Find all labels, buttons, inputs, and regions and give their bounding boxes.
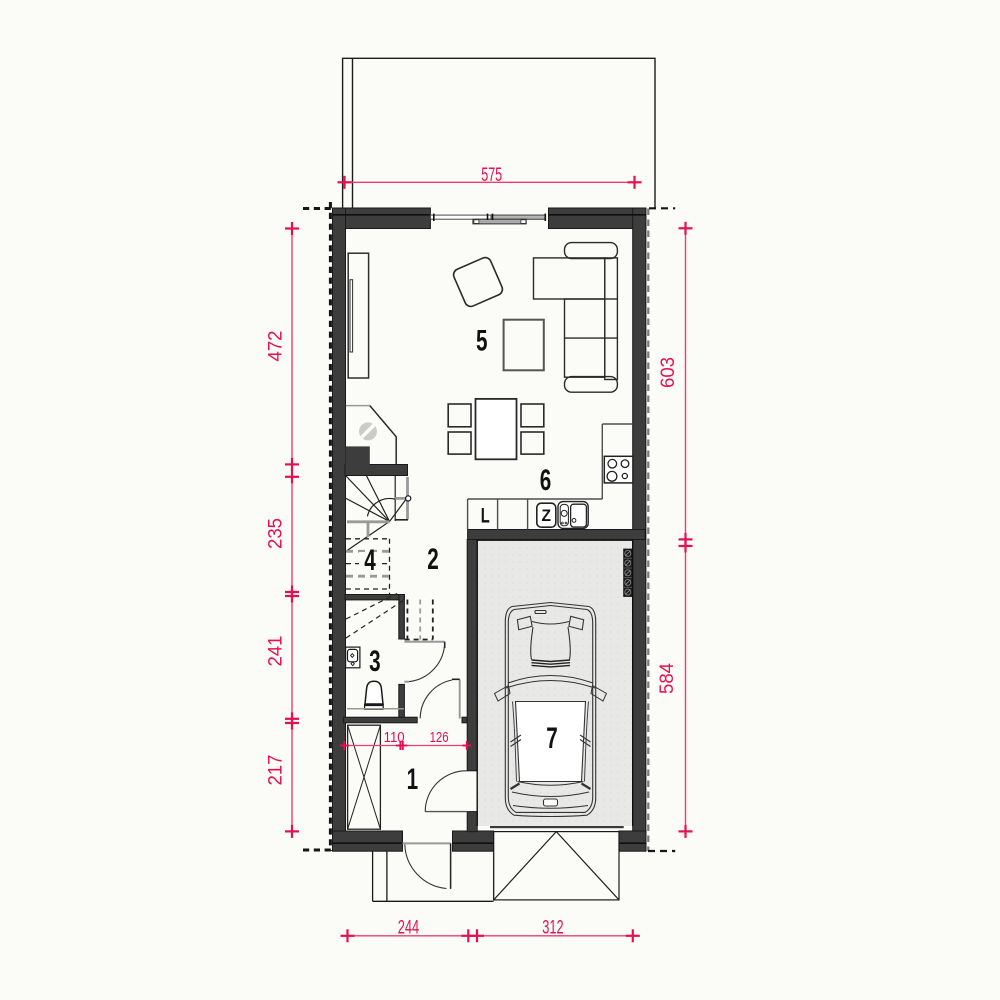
svg-text:Z: Z bbox=[542, 507, 552, 525]
svg-text:5: 5 bbox=[476, 325, 488, 358]
svg-text:603: 603 bbox=[657, 357, 679, 388]
svg-text:2: 2 bbox=[427, 543, 439, 576]
svg-text:1: 1 bbox=[407, 763, 419, 796]
svg-text:4: 4 bbox=[364, 544, 376, 577]
svg-text:472: 472 bbox=[265, 331, 287, 362]
svg-text:110: 110 bbox=[384, 730, 405, 746]
svg-text:584: 584 bbox=[656, 663, 678, 694]
svg-text:126: 126 bbox=[430, 730, 449, 746]
svg-text:235: 235 bbox=[265, 518, 287, 549]
svg-text:217: 217 bbox=[265, 755, 287, 786]
svg-text:6: 6 bbox=[540, 464, 552, 497]
svg-text:244: 244 bbox=[398, 917, 419, 939]
svg-text:7: 7 bbox=[546, 722, 558, 755]
svg-text:L: L bbox=[481, 504, 490, 527]
svg-text:3: 3 bbox=[369, 645, 381, 678]
svg-text:241: 241 bbox=[265, 636, 287, 667]
svg-text:312: 312 bbox=[542, 917, 563, 939]
svg-text:575: 575 bbox=[481, 164, 502, 186]
